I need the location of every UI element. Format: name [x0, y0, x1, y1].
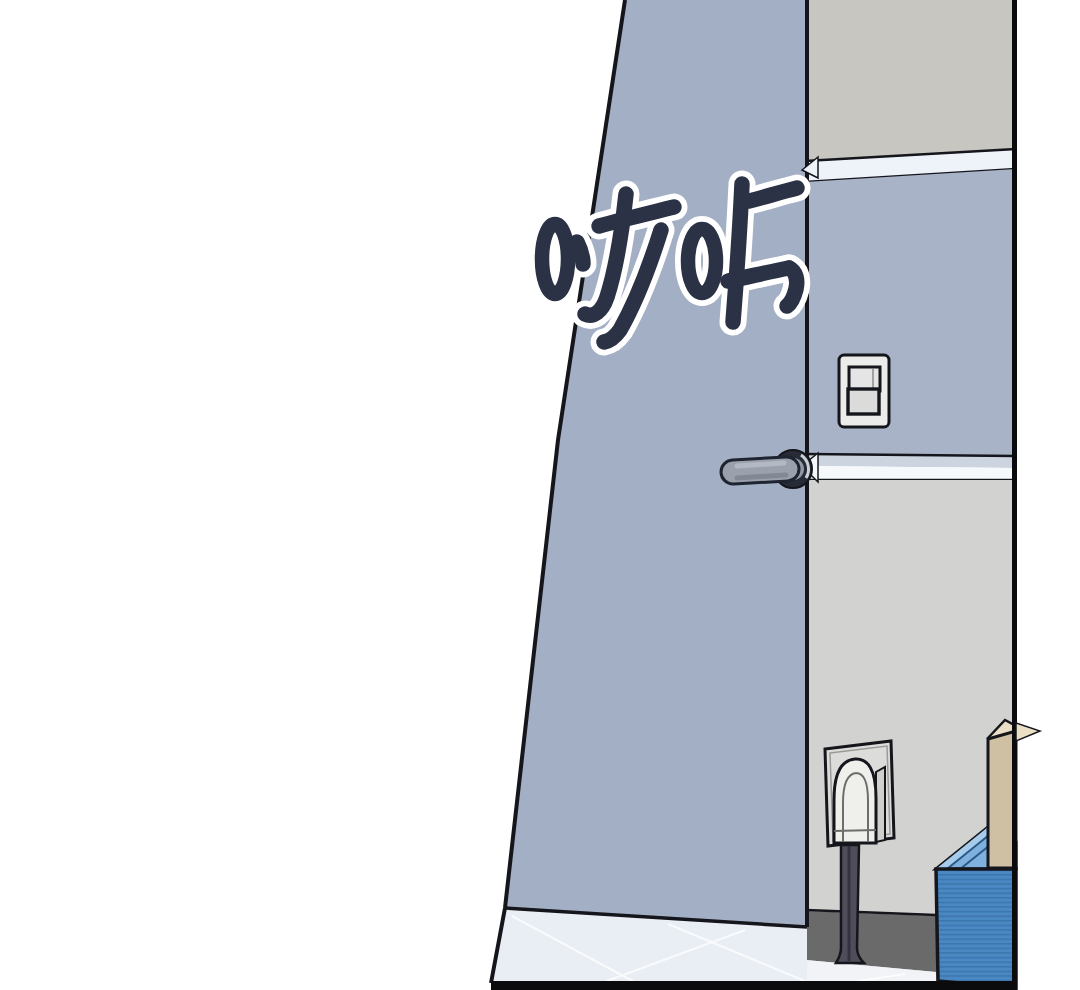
wall-upper-section — [805, 0, 1016, 162]
chair-rail-white-band — [805, 466, 1016, 479]
light-switch-rocker-bottom — [848, 389, 879, 414]
light-switch — [839, 355, 889, 427]
panel-border-bottom — [491, 981, 1017, 990]
plug-base-seam — [834, 830, 876, 831]
blue-stack-front-face — [936, 869, 1016, 988]
handle-lever-highlight — [737, 463, 784, 466]
comic-page: 哒咔 — [0, 0, 1080, 990]
wall-mid-section — [805, 169, 1016, 457]
panel-border-right — [1012, 0, 1017, 990]
cardboard-overlap-wedge — [1016, 723, 1040, 741]
cardboard-front-face — [988, 731, 1016, 868]
door — [491, 0, 807, 983]
handle-lever — [733, 469, 787, 472]
panel-art — [0, 0, 1080, 990]
handle-lever-shade — [737, 475, 786, 478]
cardboard-board — [988, 720, 1016, 868]
